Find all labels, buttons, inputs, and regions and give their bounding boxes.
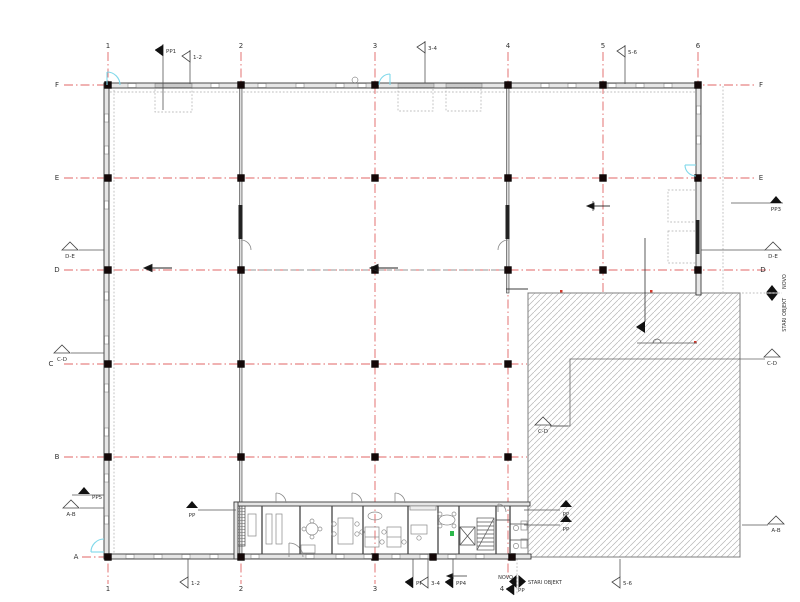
pp-flag-icon [78,487,90,494]
window [296,84,304,88]
window [476,555,484,559]
column [105,175,112,182]
gable-marker: A-B [742,516,784,534]
exit-sign [450,531,454,536]
marker-label: C-D [538,429,548,435]
window [541,84,549,88]
grid-label-top: 2 [239,42,243,50]
column [238,554,245,561]
sliding-gate [239,205,243,239]
grid-label-right: E [759,174,763,182]
column [105,361,112,368]
gflag-marker: PP5 [72,487,104,501]
cone-marker: 1-2 [182,50,202,84]
stair-strip [238,506,245,546]
window [358,84,366,88]
window [697,136,701,144]
window [182,555,190,559]
window [306,555,314,559]
gflag-marker: PP [186,501,236,519]
grid-label-right: D [760,266,765,274]
office-wall [234,502,238,559]
roof-marker-icon [765,242,781,250]
window [697,106,701,114]
column [600,82,607,89]
vent-symbol [352,77,358,83]
west-wall [104,83,109,559]
marker-label: 3-4 [428,46,437,52]
grid-label-bottom: 2 [239,585,243,593]
column [105,454,112,461]
gable-marker: C-D [764,349,780,367]
window [608,84,616,88]
roof-marker-icon [764,349,780,357]
section-cone-icon [612,577,620,588]
slope-arrow [144,265,152,272]
cone-marker: 3-4 [417,41,437,83]
window [105,384,109,392]
marker-label: C-D [57,357,67,363]
sliding-gate [696,220,700,254]
window [336,84,344,88]
dock-canopy [446,88,481,111]
roof-marker-icon [54,345,70,353]
office-interior [238,506,528,554]
floorplan-drawing: 1-2PP13-45-61-2PP23-4PP4PP5-6PP3PP5PPPPP… [0,0,800,602]
column [505,361,512,368]
grid4-wall [507,88,510,293]
marker-label: C-D [767,361,777,367]
interior-gates [239,205,700,254]
window [154,555,162,559]
column [430,554,437,561]
marker-label: 1-2 [191,581,200,587]
red-dot [650,290,653,293]
column [505,82,512,89]
old-building [528,293,740,557]
cone-marker: 5-6 [617,45,637,84]
column [238,361,245,368]
cone-marker: 3-4 [420,559,440,588]
grid-label-bottom: 4 [500,585,505,593]
cone-marker: 1-2 [180,559,200,588]
column [509,554,516,561]
roof-marker-icon [768,516,784,524]
pp-flag-icon [155,45,163,56]
slope-arrow [587,203,594,209]
window [568,84,576,88]
column [238,454,245,461]
marker-label: PP [189,513,196,519]
column [695,267,702,274]
column [238,82,245,89]
marker-label: 5-6 [628,50,637,56]
grid-label-left: C [49,360,54,368]
marker-label: D-E [65,254,75,260]
pp-flag-icon [405,577,413,588]
pp-flag-icon [506,584,514,595]
door-arc [395,493,405,503]
gable-marker: D-E [62,242,104,260]
marker-label: PP [563,527,570,533]
marker-label: A-B [66,512,75,518]
window [664,84,672,88]
marker-label: PP3 [771,207,782,213]
gable-marker: A-B [63,500,104,518]
pp-flag-icon [770,196,782,203]
south-wall [104,554,531,559]
column [505,175,512,182]
grid-label-top: 3 [373,42,377,50]
marker-label: PP5 [92,495,103,501]
column [505,454,512,461]
column [695,82,702,89]
grid-label-left: E [55,174,59,182]
grid-label-bottom: 1 [106,585,110,593]
marker-label: A-B [771,528,780,534]
grid-label-left: B [55,453,60,461]
window [105,474,109,482]
gflag-marker: PP3 [731,196,783,213]
window [105,292,109,300]
joint-label-novo: NOVO [498,575,513,581]
window [211,84,219,88]
window [105,336,109,344]
joint-label-novo: NOVO [782,274,788,289]
column [372,554,379,561]
grid-label-top: 1 [106,42,110,50]
east-wall [696,83,701,295]
grid-label-top: 5 [601,42,605,50]
grid-label-top: 4 [506,42,511,50]
window [105,428,109,436]
window [448,555,456,559]
column [372,82,379,89]
joint-label-stari: STARI OBJEKT [782,297,788,332]
column [238,267,245,274]
cone-marker: 5-6 [612,559,632,588]
window [251,555,259,559]
window [420,555,428,559]
roof-marker-icon [62,242,78,250]
marker-label: PP [518,588,525,594]
column [372,361,379,368]
red-dot [560,290,563,293]
column [600,175,607,182]
door-arc [91,539,104,552]
grid-label-left: F [55,81,59,89]
section-cone-icon [417,42,425,53]
marker-label: 1-2 [193,55,202,61]
column [372,175,379,182]
marker-label: PP4 [456,581,467,587]
column [105,554,112,561]
elevator [460,527,475,545]
window [364,555,372,559]
column [505,267,512,274]
door-arc [352,493,362,503]
window [258,84,266,88]
grid-label-left: D [54,266,59,274]
flag-marker: PP4 [445,559,467,588]
roof-marker-icon [63,500,79,508]
marker-label: 3-4 [431,581,440,587]
window [105,146,109,154]
window [128,84,136,88]
section-cone-icon [182,51,190,62]
gable-marker: D-E [701,242,781,260]
sliding-gate [506,205,510,239]
section-cone-icon [617,46,625,57]
window [336,555,344,559]
marker-label: 5-6 [623,581,632,587]
column [372,454,379,461]
pp-flag-icon [445,577,453,588]
dock-canopy [668,190,699,222]
grid-label-bottom: 3 [373,585,377,593]
grid-label-right: F [759,81,763,89]
flag-marker: PP1 [155,44,176,110]
column [238,175,245,182]
window [105,114,109,122]
window [126,555,134,559]
column [600,267,607,274]
gable-marker: C-D [54,345,104,363]
dock-canopy [155,88,192,112]
dock-canopy [668,231,698,263]
window [105,516,109,524]
window [392,555,400,559]
marker-label: D-E [768,254,778,260]
grid2-wall [240,88,243,554]
door-arc [276,493,286,503]
door-arc [241,240,251,250]
section-cone-icon [180,577,188,588]
grid-label-top: 6 [696,42,701,50]
dock-canopy [398,88,433,111]
column [105,267,112,274]
window [636,84,644,88]
floorplan-page: 1-2PP13-45-61-2PP23-4PP4PP5-6PP3PP5PPPPP… [0,0,800,602]
window [210,555,218,559]
window [105,201,109,209]
marker-label: PP1 [166,49,176,55]
staircase [477,518,494,550]
office-wall [234,502,530,506]
pp-flag-icon [186,501,198,508]
grid-label-left: A [74,553,79,561]
joint-label-stari: STARI OBJEKT [528,580,563,586]
column [105,82,112,89]
